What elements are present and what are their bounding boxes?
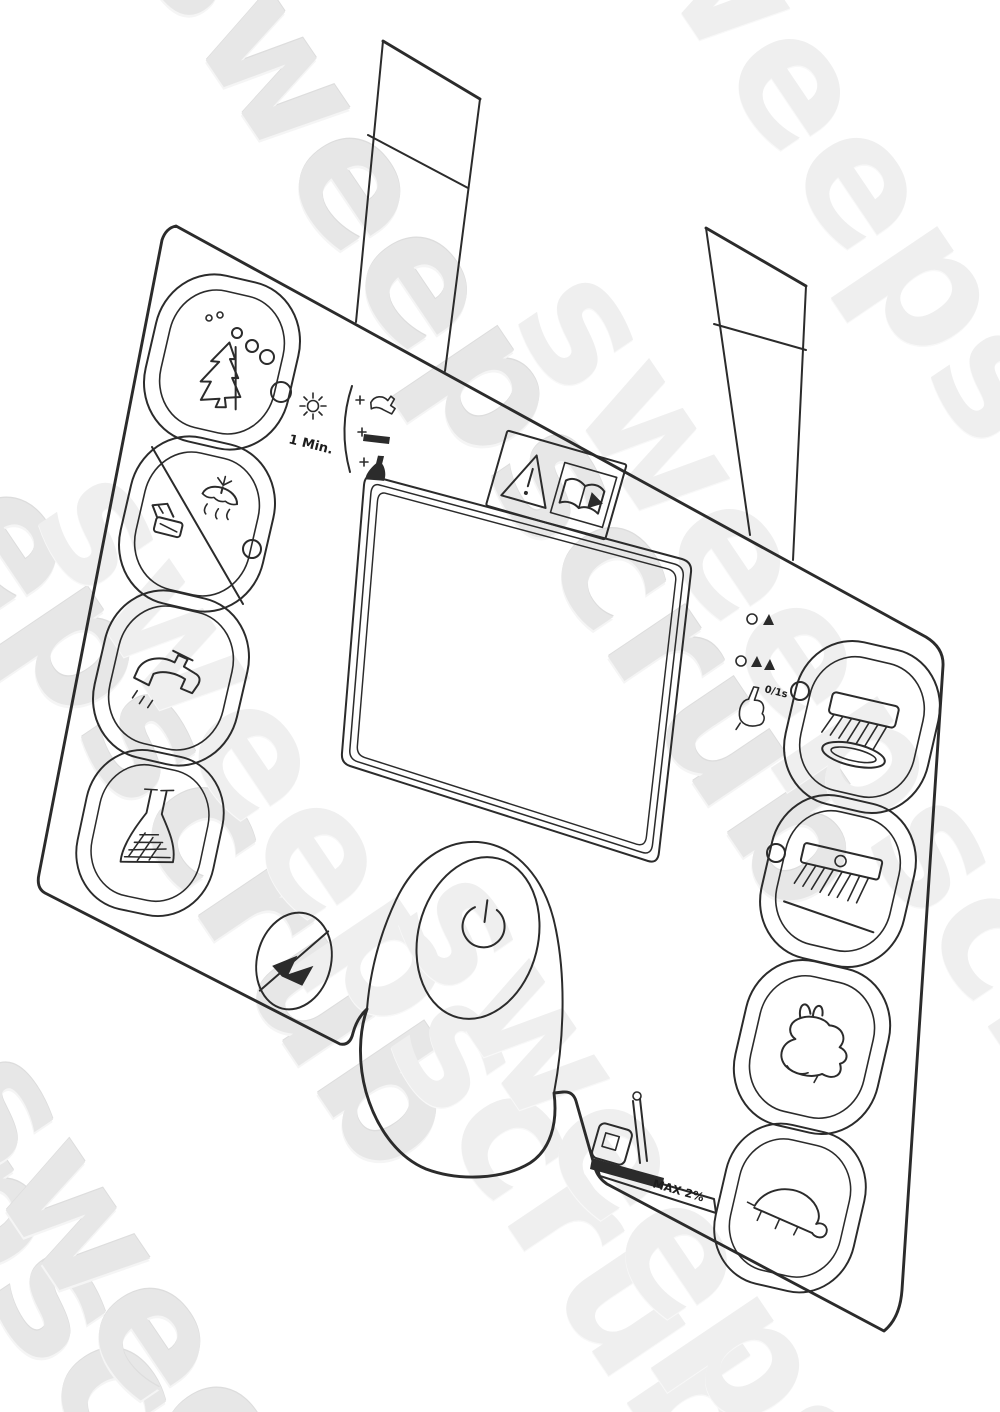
- speed-fast-button: [722, 949, 902, 1146]
- water-level-1-icon: [747, 614, 774, 625]
- turtle-icon: [743, 1181, 834, 1242]
- lcd-screen: [342, 476, 691, 862]
- ribbon-cable-right: [706, 228, 806, 560]
- flush-annotation: 1 Min.: [287, 386, 398, 484]
- detergent-mini-icon: [363, 434, 390, 444]
- scrub-brush-button: [772, 630, 952, 825]
- power-icon: [459, 897, 509, 951]
- power-button: [400, 844, 556, 1032]
- chemical-flask-icon: [120, 783, 187, 873]
- cylindrical-brush-icon: [782, 841, 890, 932]
- warning-label: [486, 430, 627, 539]
- speed-slow-button: [703, 1113, 878, 1304]
- sun-icon: [300, 393, 326, 419]
- pine-tree-bubbles-icon: [196, 312, 274, 412]
- water-level-2-icon: [736, 656, 775, 670]
- rabbit-icon: [777, 1000, 857, 1088]
- led-window: [791, 682, 809, 700]
- press-time-label: 0/1s: [763, 684, 789, 700]
- flush-time-label: 1 Min.: [287, 432, 334, 457]
- plus-signs: [356, 396, 368, 466]
- read-manual-icon: [550, 463, 616, 528]
- no-spray-icon: [146, 447, 243, 604]
- sweep-brush-button: [748, 784, 928, 979]
- brush-pad-icon: [816, 691, 900, 773]
- foam-detergent-button: [132, 263, 312, 461]
- diagram-stage: sweepscrub sweepscrub sweepscrub sweepsc…: [0, 0, 1000, 1412]
- warning-triangle-icon: [501, 449, 558, 508]
- crossed-circle-icon: [246, 905, 342, 1018]
- detergent-dose-button: [65, 740, 234, 927]
- panel-line-art: 1 Min.: [0, 0, 1000, 1412]
- bracket: [344, 386, 352, 472]
- water-flow-button: [81, 579, 261, 777]
- machine-on-ramp-icon: MAX 2%: [590, 1092, 716, 1213]
- water-level-annotation: 0/1s: [736, 614, 789, 734]
- panel-outline: [38, 226, 943, 1331]
- ribbon-cable-left: [356, 41, 480, 371]
- faucet-icon: [128, 644, 204, 718]
- faucet-mini-icon: [369, 392, 397, 415]
